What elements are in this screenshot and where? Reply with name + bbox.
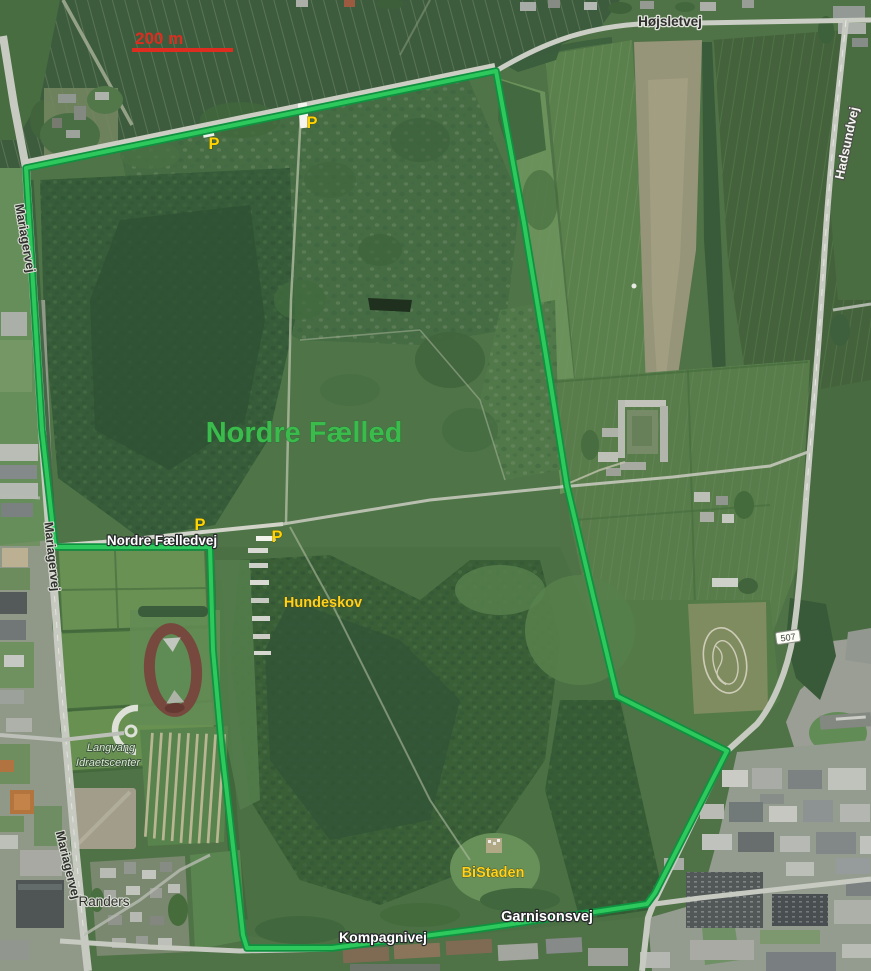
svg-text:P: P [306, 114, 317, 132]
svg-text:Langvang: Langvang [87, 742, 136, 754]
svg-text:Nordre Fælledvej: Nordre Fælledvej [107, 533, 217, 548]
svg-text:P: P [271, 528, 282, 546]
svg-text:Kompagnivej: Kompagnivej [339, 929, 427, 945]
svg-text:Idraetscenter: Idraetscenter [76, 757, 142, 769]
svg-text:Randers: Randers [78, 894, 129, 909]
svg-text:Hundeskov: Hundeskov [284, 595, 362, 611]
svg-text:Højsletvej: Højsletvej [638, 14, 702, 29]
svg-text:Garnisonsvej: Garnisonsvej [501, 909, 593, 925]
svg-text:Nordre Fælled: Nordre Fælled [206, 417, 403, 449]
svg-text:BiStaden: BiStaden [462, 865, 525, 881]
svg-text:507: 507 [780, 631, 796, 643]
svg-text:P: P [194, 516, 205, 534]
svg-text:P: P [208, 135, 219, 153]
svg-text:200 m: 200 m [135, 29, 183, 48]
